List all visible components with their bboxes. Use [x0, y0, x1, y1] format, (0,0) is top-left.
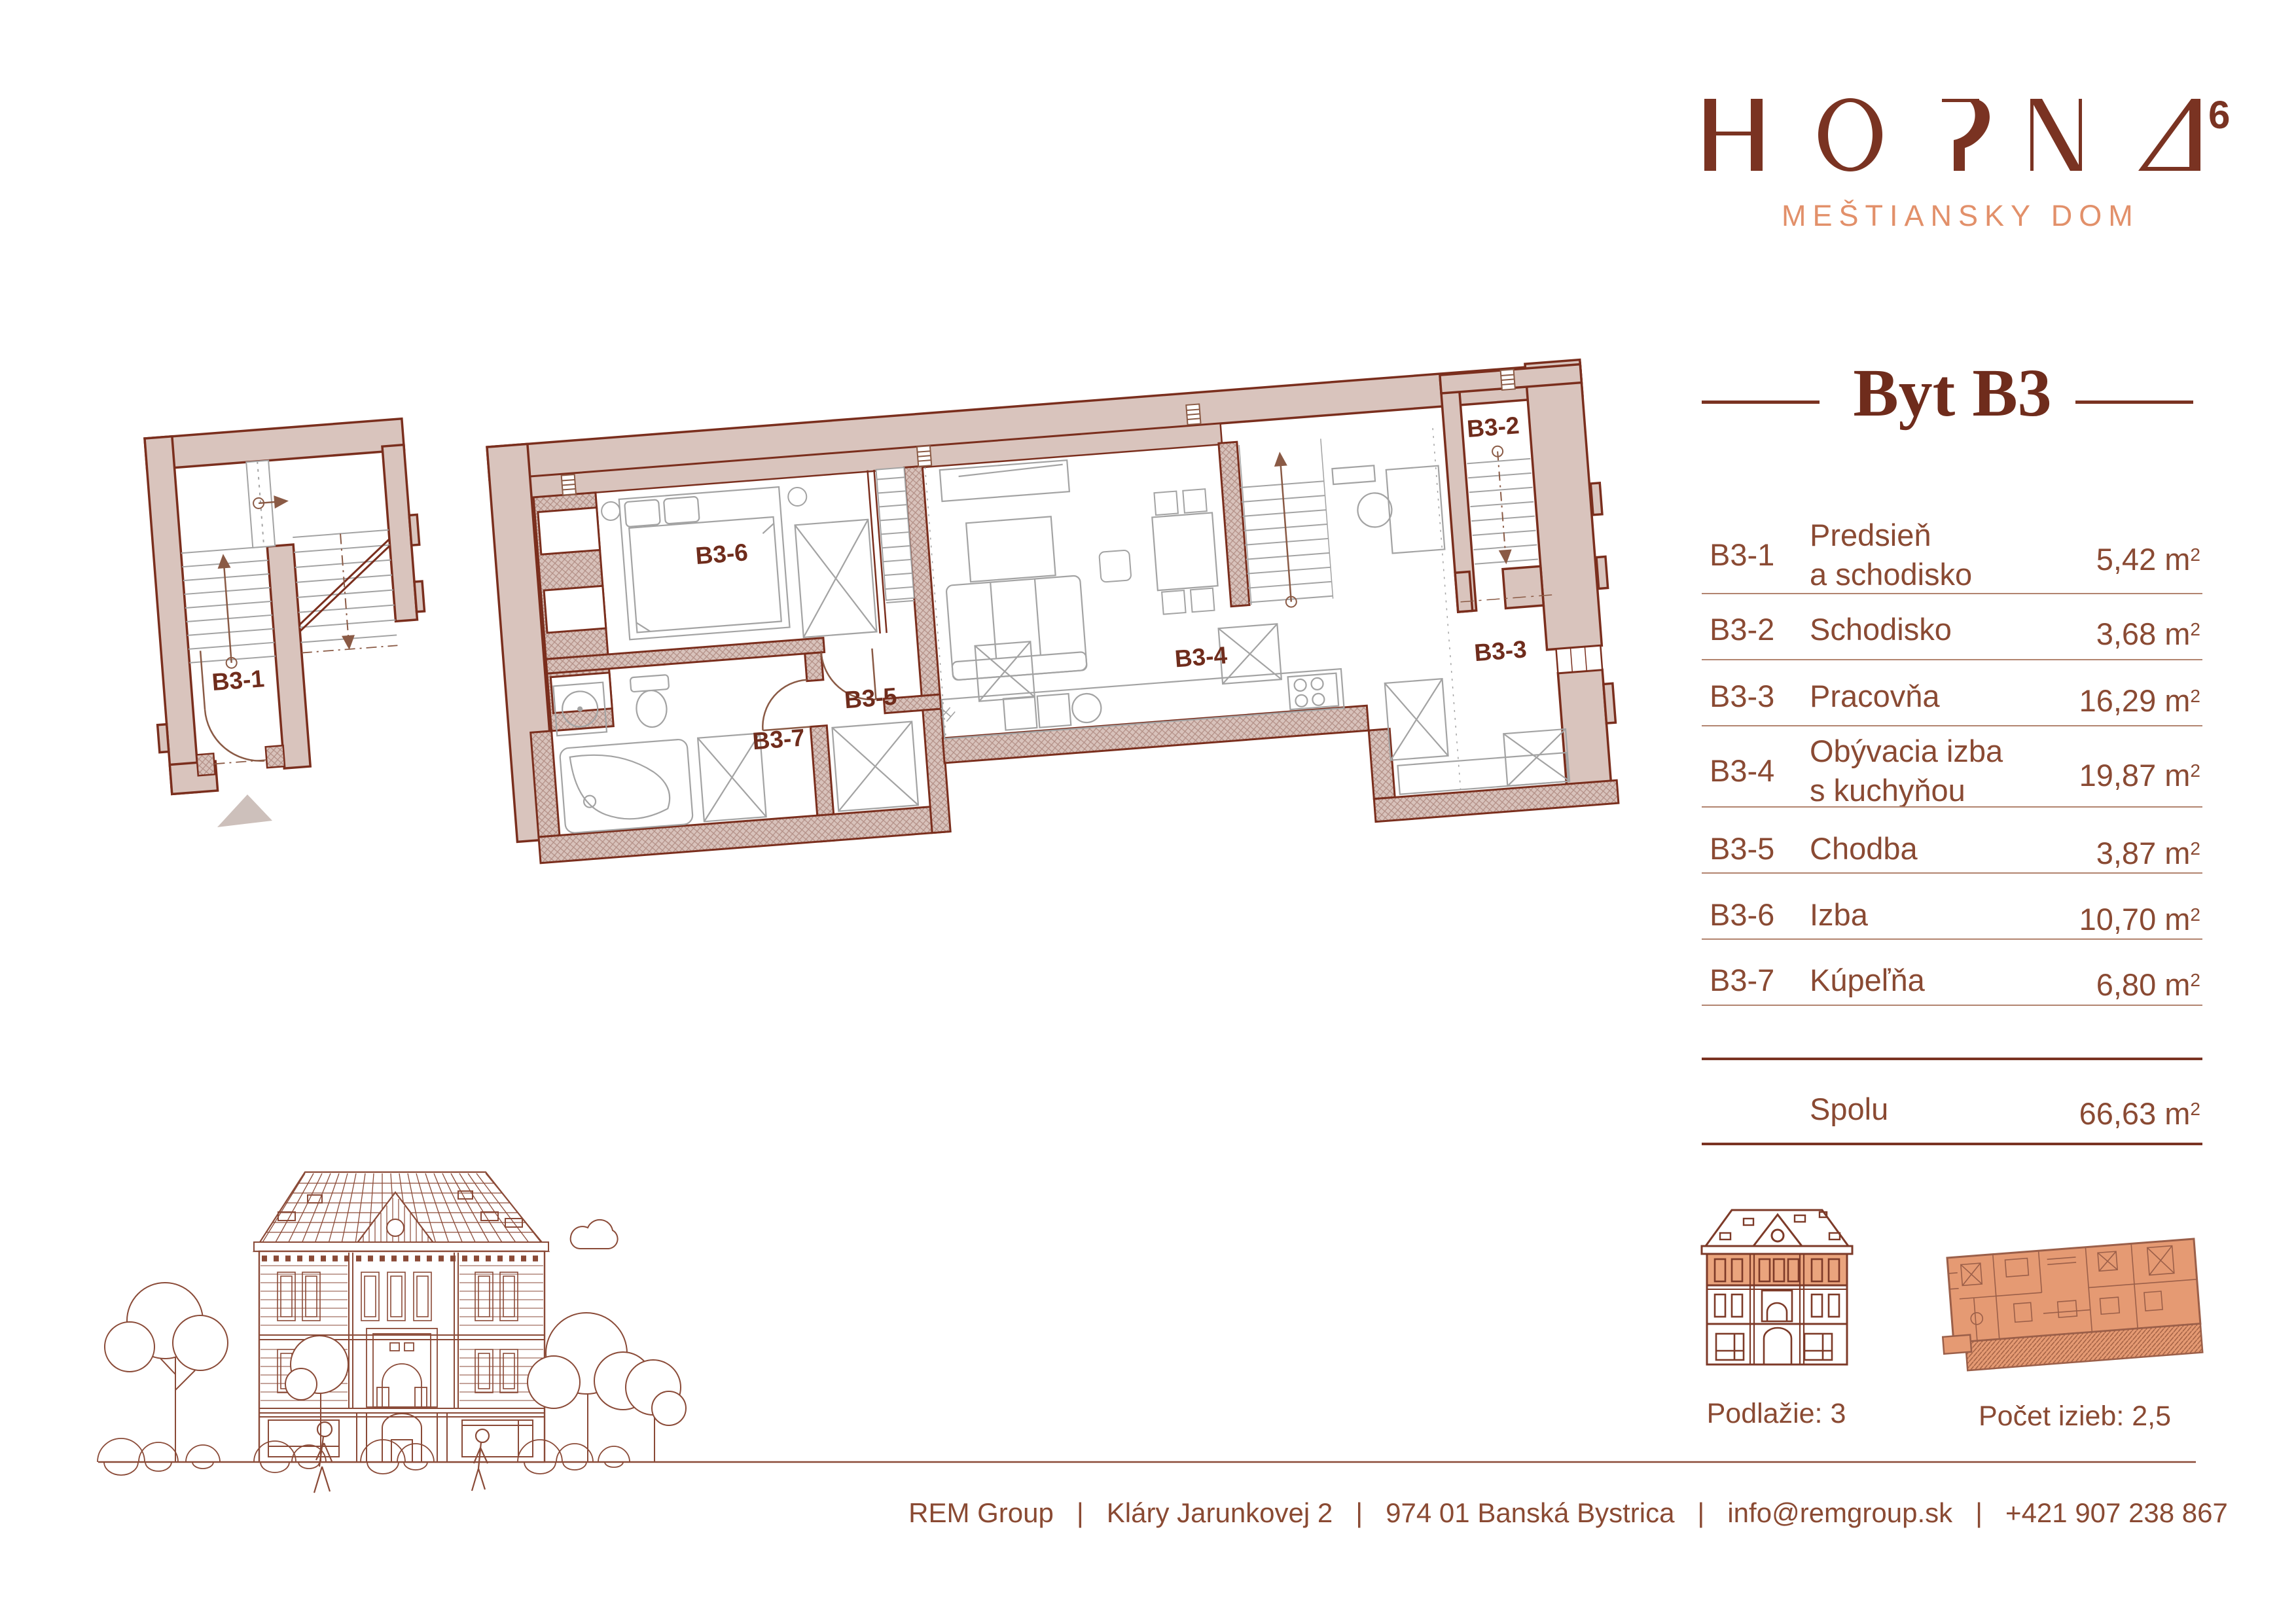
svg-text:B3-5: B3-5 [844, 683, 898, 713]
svg-text:6: 6 [2208, 93, 2230, 137]
svg-text:MEŠTIANSKY DOM: MEŠTIANSKY DOM [1782, 199, 2140, 232]
svg-text:B3-6: B3-6 [694, 539, 749, 569]
svg-text:B3-3: B3-3 [1473, 635, 1528, 666]
svg-text:B3-7: B3-7 [751, 724, 806, 755]
svg-text:B3-2: B3-2 [1466, 412, 1520, 442]
svg-text:B3-1: B3-1 [211, 665, 265, 696]
svg-text:B3-4: B3-4 [1174, 641, 1229, 672]
